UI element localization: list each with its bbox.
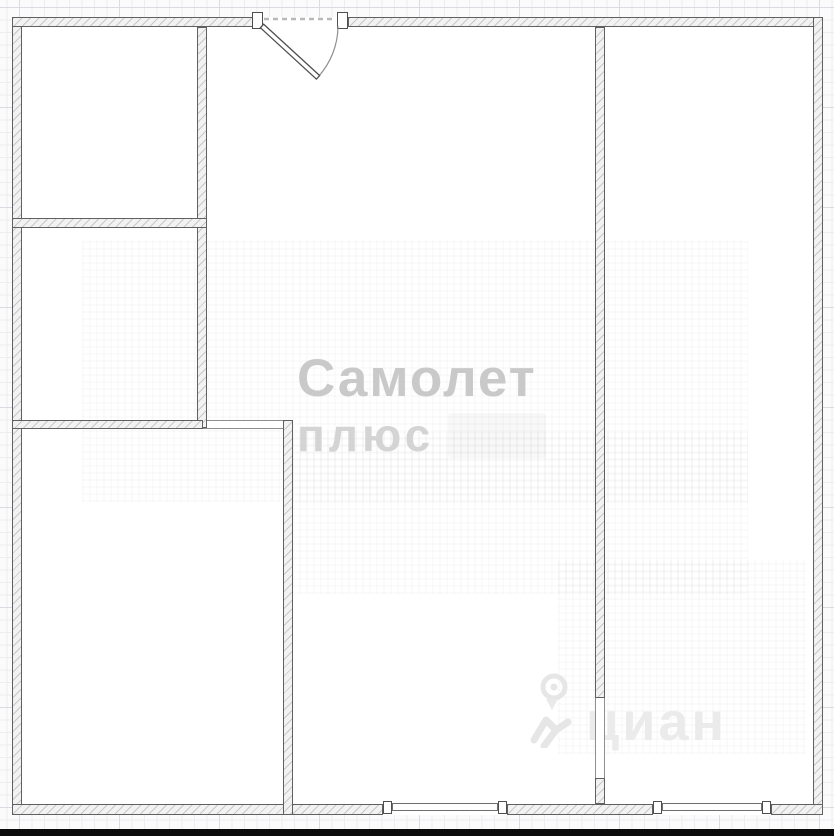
window-cap <box>383 801 392 814</box>
window-bottom-left <box>392 803 498 811</box>
wall-center-right-divider-stub <box>595 778 605 804</box>
wall-bottomleft-room-top <box>12 420 203 429</box>
wall-exterior-right <box>813 17 823 815</box>
wall-exterior-bottom-left <box>12 804 383 815</box>
floorplan-canvas: Самолет плюс циан <box>0 0 834 836</box>
bottom-bar <box>0 829 834 836</box>
door-swing-arc <box>318 26 338 77</box>
window-cap <box>498 801 507 814</box>
plan-layer <box>0 0 834 836</box>
window-cap <box>762 801 771 814</box>
wall-exterior-left <box>12 17 22 815</box>
wall-exterior-top-right <box>348 17 823 27</box>
wall-exterior-bottom-mid <box>507 804 653 815</box>
passage-bottomleft-room <box>203 420 283 429</box>
wall-bottomleft-room-right <box>283 420 293 815</box>
wall-exterior-top-left <box>12 17 253 27</box>
wall-exterior-bottom-right <box>771 804 823 815</box>
doorway-right-room <box>595 698 605 778</box>
window-cap <box>653 801 662 814</box>
door-leaf <box>260 24 319 79</box>
wall-left-rooms-horizontal <box>12 218 207 228</box>
wall-center-right-divider <box>595 27 605 698</box>
entry-door-swing-icon <box>240 8 350 88</box>
window-bottom-right <box>662 803 762 811</box>
